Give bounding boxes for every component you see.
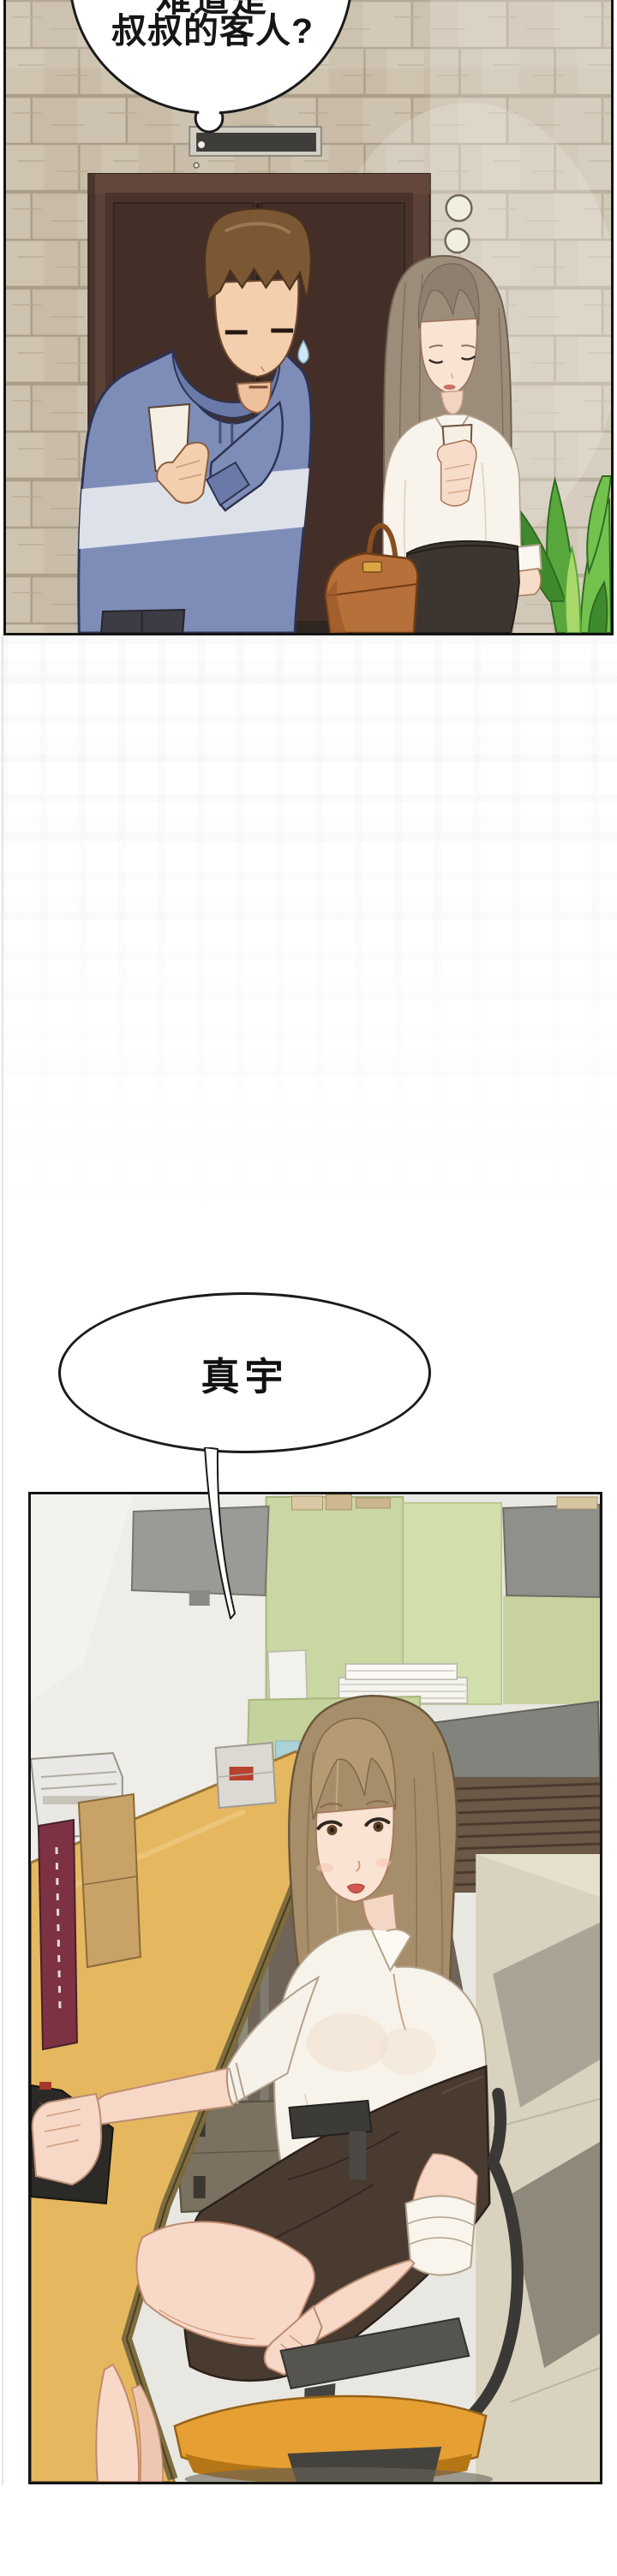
speech-bubble: 真宇 [58, 1292, 431, 1453]
cardboard-folder [79, 1794, 141, 1967]
rolled-cuff [405, 2196, 476, 2275]
watermark-fade [0, 635, 617, 1235]
comic-page: 难道是 叔叔的客人? 真宇 [0, 0, 617, 2576]
monitor-back-right [503, 1505, 600, 1597]
speech-bubble-tail [193, 1447, 244, 1627]
panel-2-office-scene [28, 1492, 602, 2484]
bubble2-text: 真宇 [201, 1345, 288, 1401]
woman-skirt [405, 541, 519, 633]
panel-2-art [31, 1494, 600, 2482]
red-book [39, 1820, 77, 2049]
bubble1-text-line2: 叔叔的客人? [67, 13, 358, 50]
thought-circle [446, 195, 472, 221]
panel-1-art [6, 0, 611, 633]
thought-circle [446, 229, 470, 253]
panel-1-doorway-scene: 难道是 叔叔的客人? [3, 0, 614, 635]
page-edge-line [2, 635, 3, 2485]
label-box [216, 1743, 276, 1808]
